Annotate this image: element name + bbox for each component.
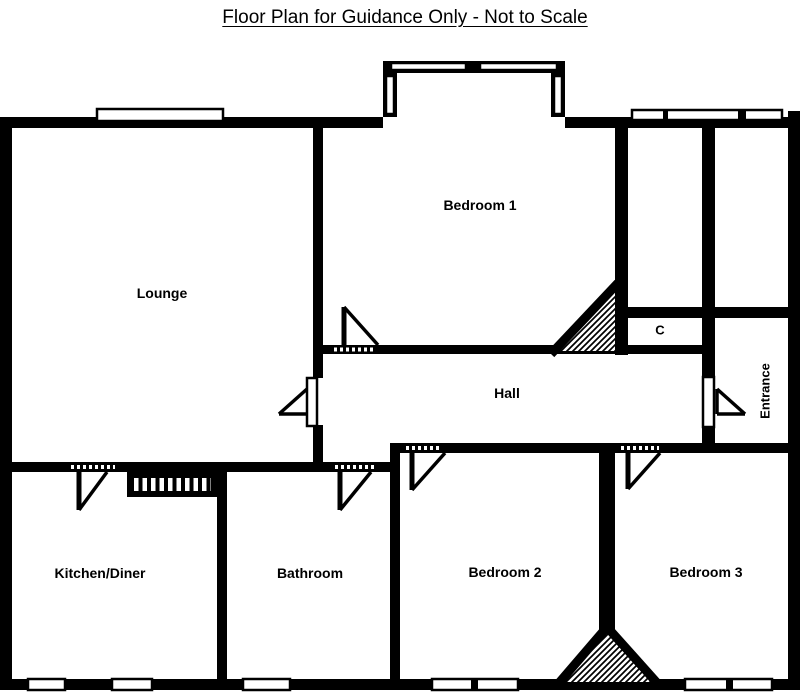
room-label-hall: Hall [494,385,520,401]
window-mullion [663,110,668,120]
wall-hall-bottom [392,443,800,453]
chimney-breast-bedrooms23 [558,627,658,684]
window-bay-top-right [480,63,557,70]
window-bay-side-right [554,76,562,114]
room-label-cupboard: C [655,323,664,338]
sill-bathroom [332,462,378,472]
sill-bedroom3 [618,443,662,453]
walls [0,61,800,690]
wall-entrance-left-upper [702,117,715,377]
window-mullion [726,679,733,690]
window-bay-side-left [386,76,394,114]
windows [28,63,782,690]
room-label-bedroom-1: Bedroom 1 [443,197,516,213]
door-entrance [703,377,745,427]
room-label-lounge: Lounge [137,285,188,301]
door-lounge [279,378,317,426]
window-kitchen-1 [28,679,65,690]
room-label-kitchen-diner: Kitchen/Diner [54,565,145,581]
window-mullion [471,679,478,690]
room-label-bathroom: Bathroom [277,565,343,581]
window-mullion [738,110,746,120]
room-label-bedroom-3: Bedroom 3 [669,564,742,580]
door-kitchen [79,472,107,510]
wall-lounge-right-upper [313,117,323,378]
door-bedroom1 [344,307,378,345]
door-bathroom [340,472,371,510]
sill-bedroom1 [331,345,377,354]
wall-hall-top [323,345,714,354]
floor-plan-drawing [0,0,808,693]
window-kitchen-2 [112,679,152,690]
room-label-bedroom-2: Bedroom 2 [468,564,541,580]
room-label-entrance: Entrance [758,363,773,419]
wall-bedroom1-right [615,117,628,355]
wall-left [0,117,12,690]
wall-kitchen-bathroom [217,472,227,690]
window-top-right [632,110,782,120]
sill-kitchen [68,462,118,472]
sill-bedroom2 [403,443,445,453]
chimney-breast-bedroom1 [551,283,618,354]
window-bathroom [243,679,290,690]
wall-right [788,111,800,690]
kitchen-hatch-unit [127,472,217,497]
window-bay-top-left [391,63,466,70]
wall-bedroom2-left [390,443,400,690]
door-bedroom3 [628,453,660,489]
wall-bedroom2-bedroom3 [599,453,615,631]
door-bedroom2 [412,453,445,490]
floor-plan-page: Floor Plan for Guidance Only - Not to Sc… [0,0,808,693]
window-lounge [97,109,223,121]
